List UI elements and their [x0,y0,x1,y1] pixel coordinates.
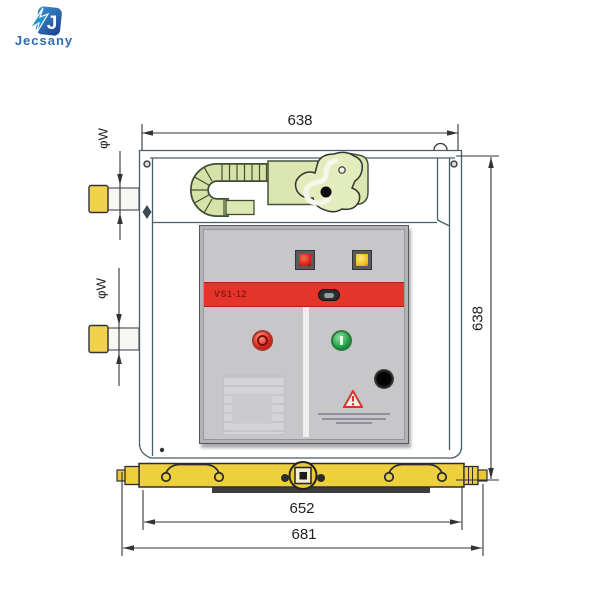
model-label: VS1-12 [214,289,247,299]
red-indicator-icon [299,254,311,266]
rating-nameplate [223,375,285,435]
panel-divider [303,307,309,437]
nameplate-print [232,394,272,424]
terminal-bushing-upper [89,186,139,213]
opening-pushbutton [252,330,273,351]
closing-pushbutton [331,330,352,351]
yellow-indicator-icon [356,254,368,266]
slot-insert [324,293,334,298]
dimension-bushing-lower [116,268,122,386]
product-diagram-page: J Jecsany [0,0,600,600]
warning-fine-print [317,413,391,427]
dimension-label-bushing-lower: φW [94,260,109,318]
open-symbol-icon [257,335,268,346]
close-symbol-icon [340,336,343,345]
panel-face: VS1-12 [203,229,405,440]
dimension-label-inner-width: 652 [272,500,332,517]
manual-energy-storage-slot [318,289,340,301]
warning-triangle-icon [343,390,363,413]
open-indicator-window [295,250,315,270]
base-beam [117,462,487,493]
model-stripe: VS1-12 [204,282,404,307]
dimension-label-right-height: 638 [470,289,487,349]
dimension-label-top-width: 638 [270,112,330,129]
charge-indicator-window [352,250,372,270]
breaker-front-panel: VS1-12 [199,225,409,444]
manual-charging-hole [374,369,394,389]
flexible-conduit [192,165,271,216]
terminal-bushing-lower [89,326,139,353]
dimension-label-bushing-upper: φW [96,110,111,168]
dimension-label-outer-width: 681 [274,526,334,543]
